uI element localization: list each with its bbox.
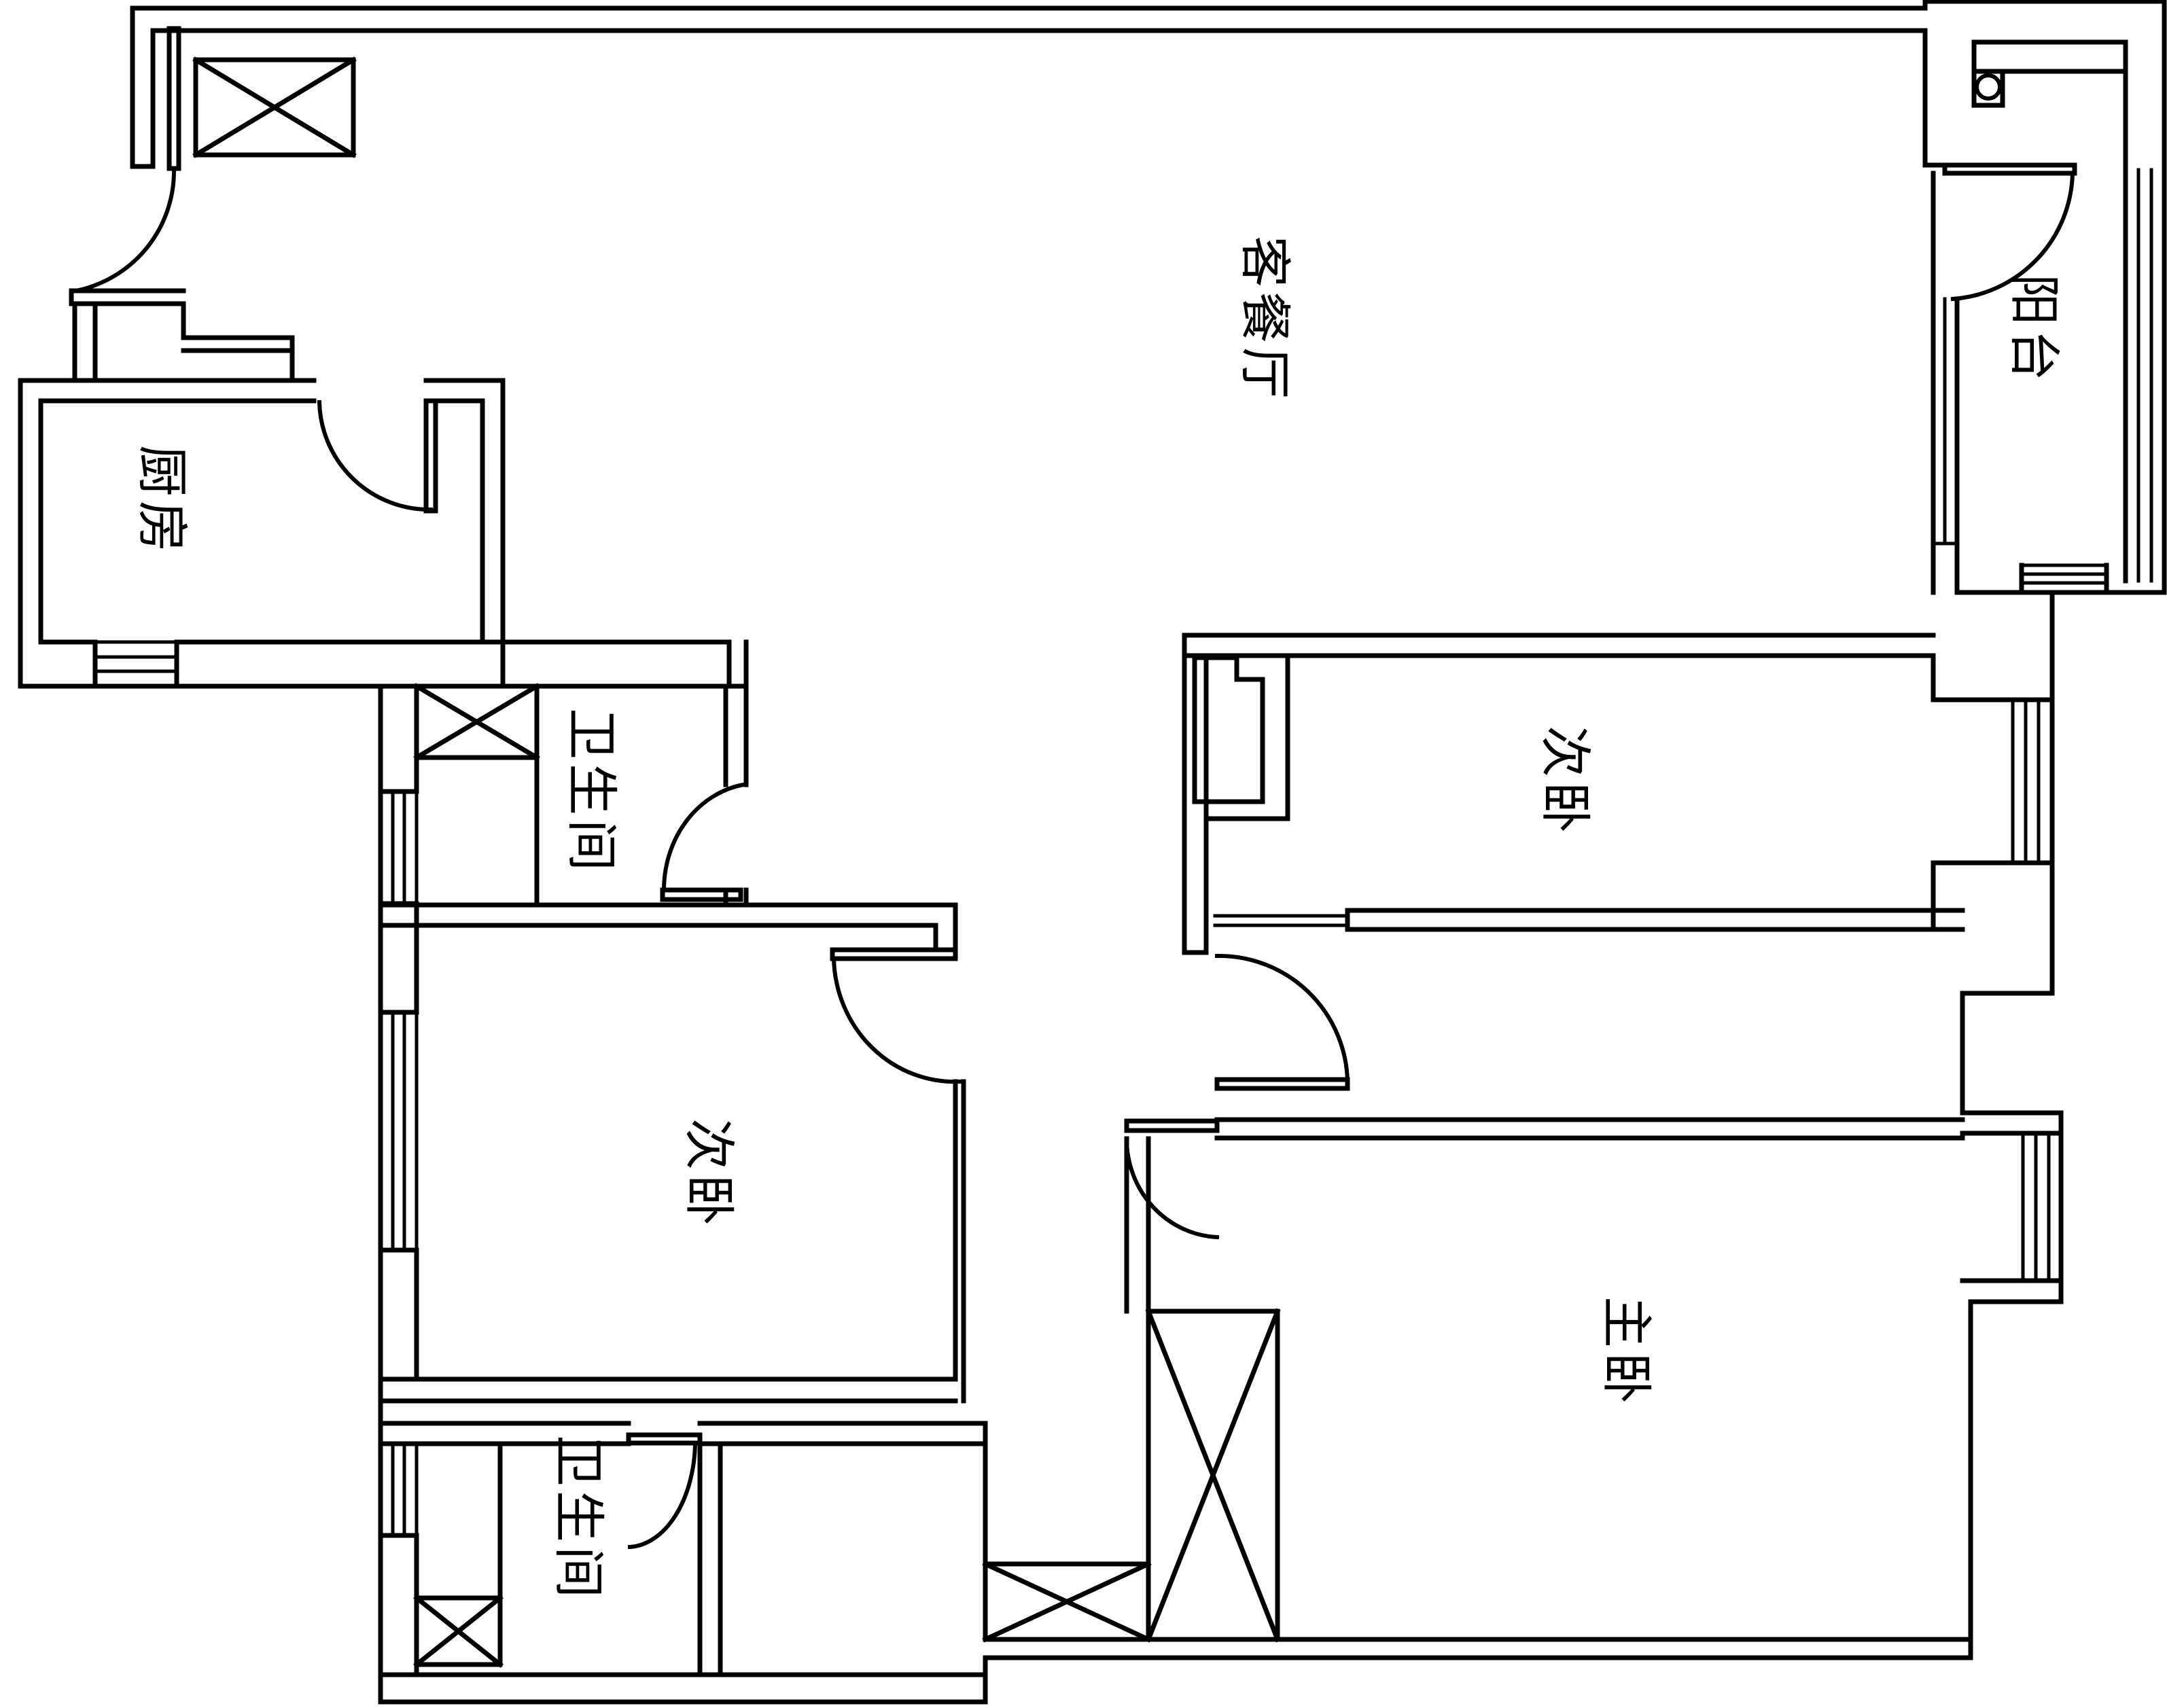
- bathroom-upper-shaft-crossed-box-icon: [417, 686, 537, 758]
- bedroom-left-walls: [381, 905, 964, 1401]
- room-label-kitchen: 厨房: [129, 445, 204, 556]
- room-label-bedroom-left: 次卧: [676, 1118, 751, 1230]
- room-label-bathroom-lower: 卫生间: [546, 1435, 620, 1602]
- room-label-balcony: 阳台: [2001, 274, 2076, 385]
- room-label-living-dining: 客餐厅: [1232, 236, 1307, 403]
- bedroom-right-closet: [1195, 658, 1288, 846]
- bathroom-upper-door: [663, 785, 743, 900]
- balcony-door-leaf: [1945, 165, 2075, 173]
- entry-door: [76, 29, 179, 291]
- master-door-arc-icon: [1127, 1139, 1217, 1237]
- hall-shaft-wide-crossed-box-icon: [985, 1564, 1148, 1639]
- master-bedroom-door: [1127, 1121, 1217, 1237]
- bedroom-right-door-leaf: [1217, 1080, 1347, 1088]
- master-window-icon: [1962, 1133, 2061, 1281]
- kitchen-window-icon: [95, 642, 177, 686]
- exterior-walls: [20, 1, 2164, 1702]
- master-bedroom-walls: [985, 1120, 1971, 1639]
- balcony-appliance-circle-fixture-icon: [1974, 71, 2003, 105]
- kitchen-door-leaf: [426, 401, 436, 511]
- room-label-master-bedroom: 主卧: [1593, 1296, 1668, 1408]
- entry-door-arc-icon: [76, 168, 174, 291]
- bathroom-lower-walls: [381, 1423, 985, 1675]
- bedroom-right-door-arc-icon: [1217, 956, 1347, 1082]
- kitchen-door-arc-icon: [319, 402, 431, 510]
- balcony-bottom-window-icon: [2022, 565, 2107, 592]
- room-label-bedroom-right: 次卧: [1532, 726, 1607, 837]
- entry-walls: [71, 291, 292, 380]
- master-shaft-tall-crossed-box-icon: [1148, 1311, 1278, 1639]
- bedroom-left-door: [832, 950, 959, 1082]
- kitchen-door: [319, 401, 436, 511]
- bathroom-lower-door: [629, 1435, 700, 1547]
- bedroom-left-door-leaf: [832, 950, 955, 959]
- room-label-bathroom-upper: 卫生间: [559, 708, 633, 875]
- bathroom-lower-window-icon: [381, 1444, 417, 1535]
- hall-door-right-bedroom: [1215, 916, 1347, 1088]
- bathroom-upper-window-icon: [381, 791, 417, 904]
- bathroom-upper-door-arc-icon: [664, 785, 743, 890]
- floor-plan-page: 客餐厅 阳台 厨房 卫生间 次卧 次卧 主卧 卫生间: [0, 0, 2167, 1708]
- floor-plan-drawing: [0, 0, 2167, 1708]
- master-door-leaf: [1127, 1121, 1217, 1131]
- bathroom-lower-shaft-crossed-box-icon: [417, 1598, 500, 1665]
- bedroom-right-window-icon: [1933, 700, 2052, 863]
- bathroom-upper-door-leaf: [663, 890, 741, 900]
- bedroom-left-window-icon: [381, 1012, 417, 1250]
- bedroom-left-door-arc-icon: [834, 959, 959, 1082]
- bathroom-lower-door-leaf: [629, 1435, 700, 1443]
- entry-door-leaf: [169, 29, 179, 168]
- entry-shaft-crossed-box-icon: [196, 60, 353, 155]
- bathroom-lower-door-arc-icon: [630, 1444, 695, 1547]
